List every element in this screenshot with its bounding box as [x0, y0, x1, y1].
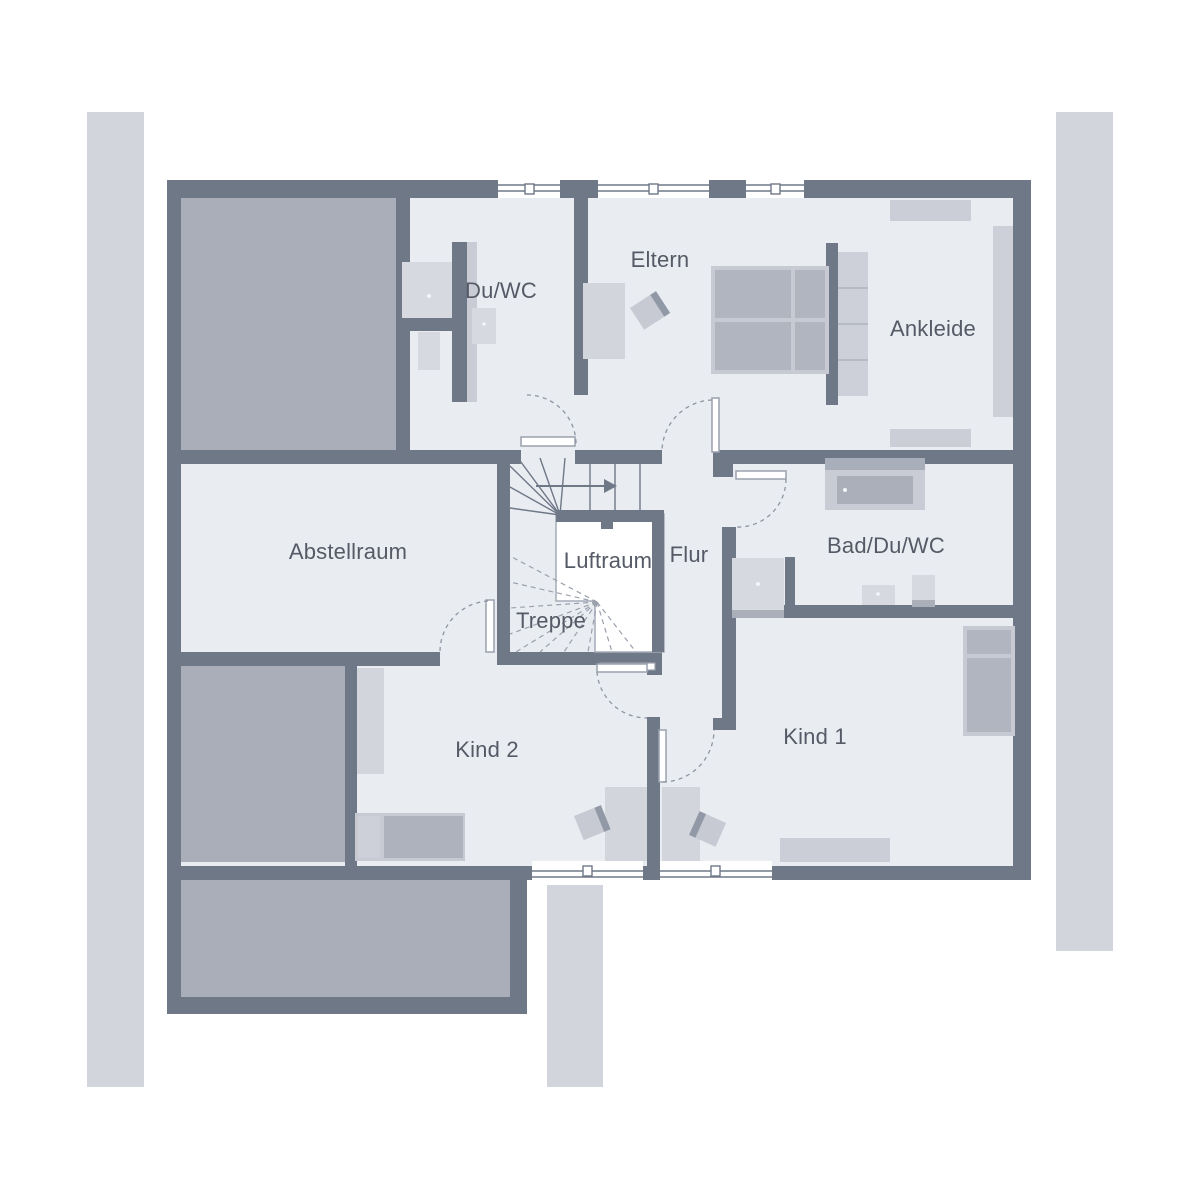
blanket-kind1	[967, 658, 1011, 732]
door-leaf-kind1	[659, 730, 666, 782]
desk-kind2	[605, 787, 647, 861]
pillow-kind2	[358, 816, 380, 858]
wardrobe-kind2	[357, 668, 384, 774]
pillow-1	[795, 270, 825, 318]
door-leaf-eltern	[712, 398, 719, 452]
wardrobe-east	[993, 226, 1013, 417]
door-leaf-bad	[736, 471, 786, 479]
right-roof-strip	[1056, 112, 1113, 951]
toilet-duwc	[418, 332, 440, 370]
sink-duwc	[472, 308, 496, 344]
left-roof-strip	[87, 112, 144, 1087]
dresser-top	[890, 200, 971, 221]
roof-area-top-left	[181, 198, 396, 452]
shower-duwc	[402, 262, 452, 318]
pillow-kind1	[967, 630, 1011, 654]
wall-stair-west	[497, 458, 510, 665]
bathtub-drain-icon	[843, 488, 847, 492]
floorplan-drawing	[0, 0, 1200, 1200]
shower-edge	[732, 610, 784, 618]
pillow-2	[795, 322, 825, 370]
door-leaf-kind2	[597, 664, 647, 672]
floorplan-page: Du/WCElternAnkleideAbstellraumLuftraumFl…	[0, 0, 1200, 1200]
wall-duwc-partition	[452, 242, 467, 402]
mattress-kind2	[384, 816, 463, 858]
wall-tab-kind1-door	[713, 718, 736, 730]
door-leaf-abstellraum	[486, 600, 494, 652]
window-duwc	[498, 172, 560, 198]
wall-kind2-kind1	[647, 717, 660, 866]
wall-middle-center	[575, 450, 662, 464]
wall-tab-luftraum	[601, 517, 613, 529]
desk-eltern	[583, 283, 625, 359]
bathtub-ledge	[825, 458, 925, 470]
window-kind1	[660, 861, 772, 885]
mattress-2	[715, 322, 791, 370]
dresser-bottom	[890, 429, 971, 447]
door-leaf-duwc	[521, 437, 575, 446]
window-ankleide	[746, 172, 804, 198]
toilet-seat-edge	[912, 600, 935, 607]
shower-drain-icon-2	[756, 582, 760, 586]
wall-middle-west	[167, 450, 521, 464]
wall-bad-shower-partition	[785, 557, 795, 618]
sideboard-kind1	[780, 838, 890, 862]
wall-luftraum-east	[652, 510, 664, 652]
shower-drain-icon	[427, 294, 431, 298]
window-eltern	[598, 172, 709, 198]
wall-abstellraum-south	[167, 652, 440, 666]
toilet-bad	[912, 575, 935, 600]
window-kind2	[532, 861, 643, 885]
wall-post-eltern-door	[713, 450, 733, 477]
annex-roof-area	[181, 880, 510, 997]
roof-area-mid-left	[181, 666, 345, 862]
mattress-1	[715, 270, 791, 318]
sink-drain-icon-2	[876, 592, 880, 596]
bathtub	[837, 476, 913, 504]
bottom-roof-strip	[547, 885, 603, 1087]
sink-drain-icon	[482, 322, 486, 326]
wall-flur-east	[722, 527, 736, 718]
